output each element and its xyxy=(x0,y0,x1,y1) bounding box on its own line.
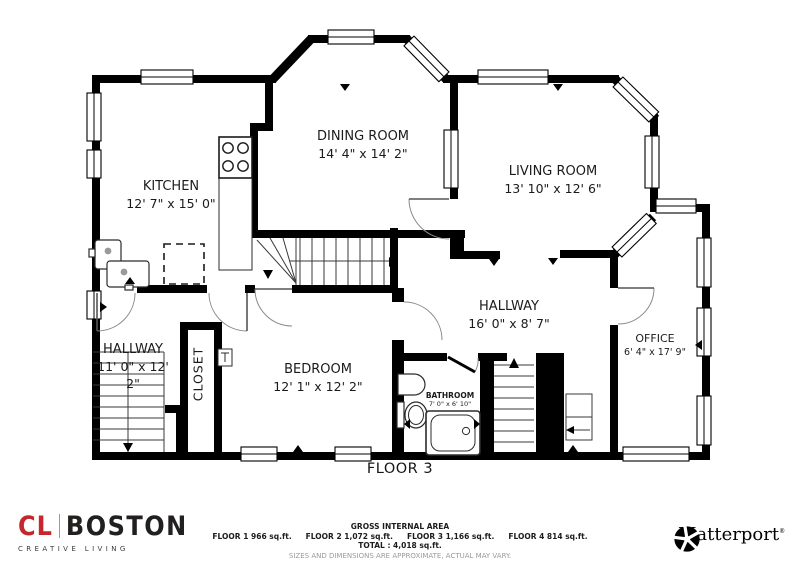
vanity-icon xyxy=(398,374,425,395)
gia-floors: FLOOR 1 966 sq.ft.FLOOR 2 1,072 sq.ft.FL… xyxy=(100,532,700,542)
room-label-dining-room: DINING ROOM 14' 4" x 14' 2" xyxy=(317,128,409,162)
room-label-living-room: LIVING ROOM 13' 10" x 12' 6" xyxy=(504,163,601,197)
toilet-icon xyxy=(397,402,427,428)
gross-internal-area: GROSS INTERNAL AREA FLOOR 1 966 sq.ft.FL… xyxy=(100,522,700,561)
dishwasher-icon xyxy=(164,244,204,284)
bathroom-door-leaf xyxy=(448,357,475,372)
cl-name: BOSTON xyxy=(66,510,188,541)
matterport-trademark: ® xyxy=(779,528,785,535)
gia-floor-4: FLOOR 4 814 sq.ft. xyxy=(508,532,587,541)
room-name: HALLWAY xyxy=(89,341,177,358)
room-name: DINING ROOM xyxy=(317,128,409,145)
cl-divider xyxy=(59,514,60,538)
gia-floor-3: FLOOR 3 1,166 sq.ft. xyxy=(407,532,494,541)
stairs-center-icon xyxy=(257,238,390,285)
matterport-logo: Matterport® xyxy=(672,524,785,545)
room-label-hallway: HALLWAY 16' 0" x 8' 7" xyxy=(468,298,549,332)
matterport-icon xyxy=(672,524,702,554)
room-dims: 13' 10" x 12' 6" xyxy=(504,180,601,197)
gia-disclaimer: SIZES AND DIMENSIONS ARE APPROXIMATE, AC… xyxy=(100,552,700,562)
cl-tagline: CREATIVE LIVING xyxy=(18,545,188,553)
switch-icon xyxy=(218,349,232,366)
floor-plan-canvas xyxy=(0,0,800,565)
room-name: BATHROOM xyxy=(426,391,474,400)
floor-plan: KITCHEN 12' 7" x 15' 0" DINING ROOM 14' … xyxy=(0,0,800,565)
room-dims: 16' 0" x 8' 7" xyxy=(468,315,549,332)
room-dims: 7' 0" x 6' 10" xyxy=(426,400,474,409)
gia-title: GROSS INTERNAL AREA xyxy=(100,522,700,532)
cl-boston-logo: CL BOSTON CREATIVE LIVING xyxy=(18,512,188,553)
gia-floor-1: FLOOR 1 966 sq.ft. xyxy=(212,532,291,541)
room-label-closet: CLOSET xyxy=(191,347,206,402)
room-dims: 11' 0" x 12' 2" xyxy=(89,358,177,392)
room-dims: 12' 1" x 12' 2" xyxy=(273,378,362,395)
cl-initials: CL xyxy=(18,510,53,541)
landing-steps-icon xyxy=(566,394,592,440)
stairs-right-icon xyxy=(494,358,534,442)
bathtub-icon xyxy=(426,411,480,455)
stove-icon xyxy=(219,137,252,178)
room-label-kitchen: KITCHEN 12' 7" x 15' 0" xyxy=(126,178,215,212)
floor-title: FLOOR 3 xyxy=(367,461,433,477)
room-name: KITCHEN xyxy=(126,178,215,195)
room-label-bathroom: BATHROOM 7' 0" x 6' 10" xyxy=(426,391,474,409)
room-name: HALLWAY xyxy=(468,298,549,315)
room-name: BEDROOM xyxy=(273,361,362,378)
room-name: LIVING ROOM xyxy=(504,163,601,180)
room-name: OFFICE xyxy=(624,332,686,346)
room-dims: 6' 4" x 17' 9" xyxy=(624,346,686,360)
room-label-bedroom: BEDROOM 12' 1" x 12' 2" xyxy=(273,361,362,395)
gia-total: TOTAL : 4,018 sq.ft. xyxy=(100,541,700,551)
gia-floor-2: FLOOR 2 1,072 sq.ft. xyxy=(306,532,393,541)
room-label-hallway-2: HALLWAY 11' 0" x 12' 2" xyxy=(89,341,177,392)
room-dims: 12' 7" x 15' 0" xyxy=(126,195,215,212)
room-label-office: OFFICE 6' 4" x 17' 9" xyxy=(624,332,686,360)
room-dims: 14' 4" x 14' 2" xyxy=(317,145,409,162)
floorplan-page: { "rooms": [ {"name": "KITCHEN", "dims":… xyxy=(0,0,800,565)
